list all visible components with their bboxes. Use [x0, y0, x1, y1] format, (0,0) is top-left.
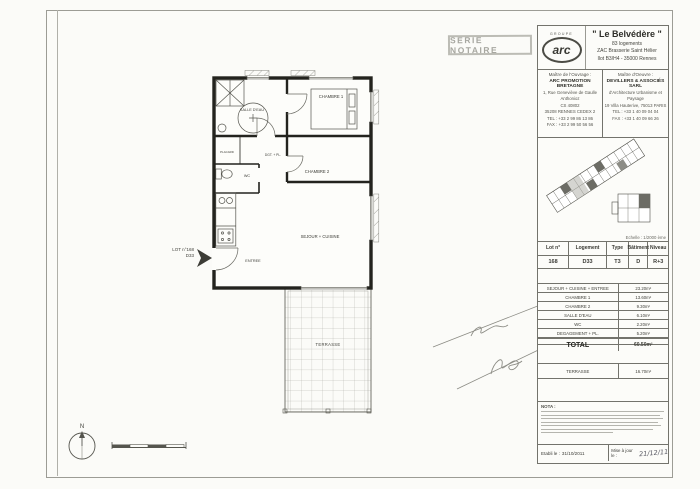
mise-a-jour-cell: Mise à jour le : 21/12/11	[608, 445, 668, 461]
nota-text-line	[541, 432, 613, 433]
orientation-and-scale: N	[58, 418, 208, 468]
room-label-dgt: DGT. + PL.	[265, 153, 281, 157]
surface-label: CHAMBRE 1	[538, 293, 619, 301]
logo-group-text: GROUPE	[550, 32, 573, 36]
project-identity: " Le Belvédère " 83 logements ZAC Brasse…	[586, 26, 668, 69]
owner-name: ARC PROMOTION BRETAGNE	[539, 79, 601, 89]
terrace-label: TERRASSE	[538, 364, 619, 378]
owner-line: 1, Rue Geneviève de Gaulle Anthonioz	[539, 90, 601, 103]
surface-row: CHAMBRE 1 13.60m²	[538, 293, 668, 302]
surface-row: SEJOUR + CUISINE + ENTREE 23.20m²	[538, 284, 668, 293]
nota-text-line	[541, 411, 664, 412]
nota-text-line	[541, 422, 658, 423]
owner-heading: Maître de l'Ouvrage :	[539, 72, 601, 77]
frame-binding-margin-line	[57, 10, 58, 476]
room-label-terrasse: TERRASSE	[316, 342, 341, 347]
north-label: N	[80, 424, 84, 430]
architect-name: DEVILLERS & ASSOCIÉS SARL	[604, 79, 667, 89]
surface-value: 23.20m²	[619, 284, 668, 292]
owner-line: 35208 RENNES CEDEX 2	[539, 109, 601, 115]
lot-value-lot: 168	[538, 256, 569, 269]
dates-footer: Etabli le : 31/10/2011 Mise à jour le : …	[538, 445, 668, 461]
lot-pointer-line2: D33	[150, 253, 194, 259]
site-plan-drawing	[538, 138, 666, 241]
etabli-label: Etabli le :	[541, 451, 560, 456]
project-subtitle-2: ZAC Brasserie Saint Hélier	[586, 48, 668, 54]
project-title: " Le Belvédère "	[586, 29, 668, 39]
lot-header-niveau: Niveau	[648, 242, 668, 256]
nota-heading: NOTA :	[541, 404, 665, 409]
room-label-placard: PLACARD	[220, 150, 234, 154]
surface-label: DEGAGEMENT + PL.	[538, 329, 619, 337]
panel-spacer	[538, 379, 668, 402]
floor-plan: TERRASSE	[195, 68, 385, 418]
nota-text-line	[541, 415, 660, 416]
company-logo: GROUPE arc	[538, 26, 586, 69]
lot-value-type: T3	[607, 256, 629, 269]
surface-row: CHAMBRE 2 9.30m²	[538, 302, 668, 311]
lot-header-type: Type	[607, 242, 629, 256]
surface-value: 5.20m²	[619, 329, 668, 337]
terrace-value: 16.70m²	[619, 364, 668, 378]
scanned-floorplan-sheet: { "stamp": {"label": "SERIE NOTAIRE"}, "…	[0, 0, 700, 489]
surface-label: SALLE D'EAU	[538, 311, 619, 319]
surface-value: 2.20m²	[619, 320, 668, 328]
project-subtitle-3: Ilot B3/H4 - 35000 Rennes	[586, 56, 668, 62]
architect-heading: Maître d'Oeuvre :	[604, 72, 667, 77]
stamp-label: SERIE NOTAIRE	[450, 35, 530, 56]
room-label-sejour: SEJOUR + CUISINE	[301, 234, 340, 239]
surface-label: WC	[538, 320, 619, 328]
sheet-background: SERIE NOTAIRE TERRASSE	[0, 0, 700, 489]
contacts-section: Maître de l'Ouvrage : ARC PROMOTION BRET…	[538, 70, 668, 138]
maj-label: Mise à jour le :	[611, 448, 637, 458]
project-subtitle-1: 83 logements	[586, 41, 668, 47]
surface-value: 9.30m²	[619, 302, 668, 310]
architect-line: TEL : +33 1 40 09 04 04	[604, 109, 667, 115]
lot-table: Lot n° Logement Type Bâtiment Niveau 168…	[538, 242, 668, 269]
nota-text-line	[541, 425, 661, 426]
etabli-value: 31/10/2011	[562, 451, 585, 456]
maj-handwritten-value: 21/12/11	[638, 448, 668, 459]
key-site-plan: Echelle : 1/2000 ème	[538, 138, 668, 242]
terrace-row: TERRASSE 16.70m²	[538, 364, 668, 378]
logo-name: arc	[552, 43, 570, 57]
lot-header-logement: Logement	[569, 242, 607, 256]
surface-table: SEJOUR + CUISINE + ENTREE 23.20m² CHAMBR…	[538, 284, 668, 345]
terrace-table: TERRASSE 16.70m²	[538, 364, 668, 379]
title-block-header: GROUPE arc " Le Belvédère " 83 logements…	[538, 26, 668, 70]
surface-total-row: TOTAL 60.50m²	[538, 338, 668, 351]
lot-value-logement: D33	[569, 256, 607, 269]
lot-entry-arrow	[197, 249, 212, 267]
owner-line: FAX : +33 2 99 50 56 56	[539, 122, 601, 128]
lot-value-niveau: R+3	[648, 256, 668, 269]
lot-header-lot: Lot n°	[538, 242, 569, 256]
surface-row: DEGAGEMENT + PL. 5.20m²	[538, 329, 668, 338]
title-block: GROUPE arc " Le Belvédère " 83 logements…	[537, 25, 669, 464]
serie-notaire-stamp: SERIE NOTAIRE	[448, 35, 532, 56]
room-label-entree: ENTREE	[245, 259, 261, 263]
site-plan-scale-caption: Echelle : 1/2000 ème	[626, 235, 666, 240]
surface-total-label: TOTAL	[538, 339, 619, 351]
room-label-chambre1: CHAMBRE 1	[319, 94, 344, 99]
surface-label: CHAMBRE 2	[538, 302, 619, 310]
arc-logo-ellipse: arc	[542, 37, 582, 63]
architect-block: Maître d'Oeuvre : DEVILLERS & ASSOCIÉS S…	[603, 70, 668, 137]
surface-row: SALLE D'EAU 6.10m²	[538, 311, 668, 320]
room-label-wc: WC	[244, 174, 251, 178]
surface-label: SEJOUR + CUISINE + ENTREE	[538, 284, 619, 292]
surface-value: 6.10m²	[619, 311, 668, 319]
lot-header-batiment: Bâtiment	[629, 242, 649, 256]
owner-block: Maître de l'Ouvrage : ARC PROMOTION BRET…	[538, 70, 603, 137]
scale-bar	[112, 442, 186, 449]
etabli-cell: Etabli le : 31/10/2011	[538, 445, 608, 461]
panel-spacer	[538, 269, 668, 284]
room-label-salle-deau: SALLE D'EAU	[240, 108, 264, 112]
architect-line: FAX : +33 1 40 09 66 26	[604, 116, 667, 122]
surface-total-value: 60.50m²	[619, 339, 668, 351]
surface-row: WC 2.20m²	[538, 320, 668, 329]
nota-text-line	[541, 418, 663, 419]
north-arrow-icon: N	[69, 424, 95, 459]
terrace-area: TERRASSE	[283, 288, 371, 413]
floor-plan-drawing: TERRASSE	[195, 68, 385, 418]
nota-text-line	[541, 429, 653, 430]
lot-pointer-label: LOT n°168 D33	[150, 247, 194, 260]
surface-value: 13.60m²	[619, 293, 668, 301]
lot-value-batiment: D	[629, 256, 649, 269]
nota-section: NOTA :	[538, 402, 668, 445]
room-label-chambre2: CHAMBRE 2	[305, 169, 330, 174]
